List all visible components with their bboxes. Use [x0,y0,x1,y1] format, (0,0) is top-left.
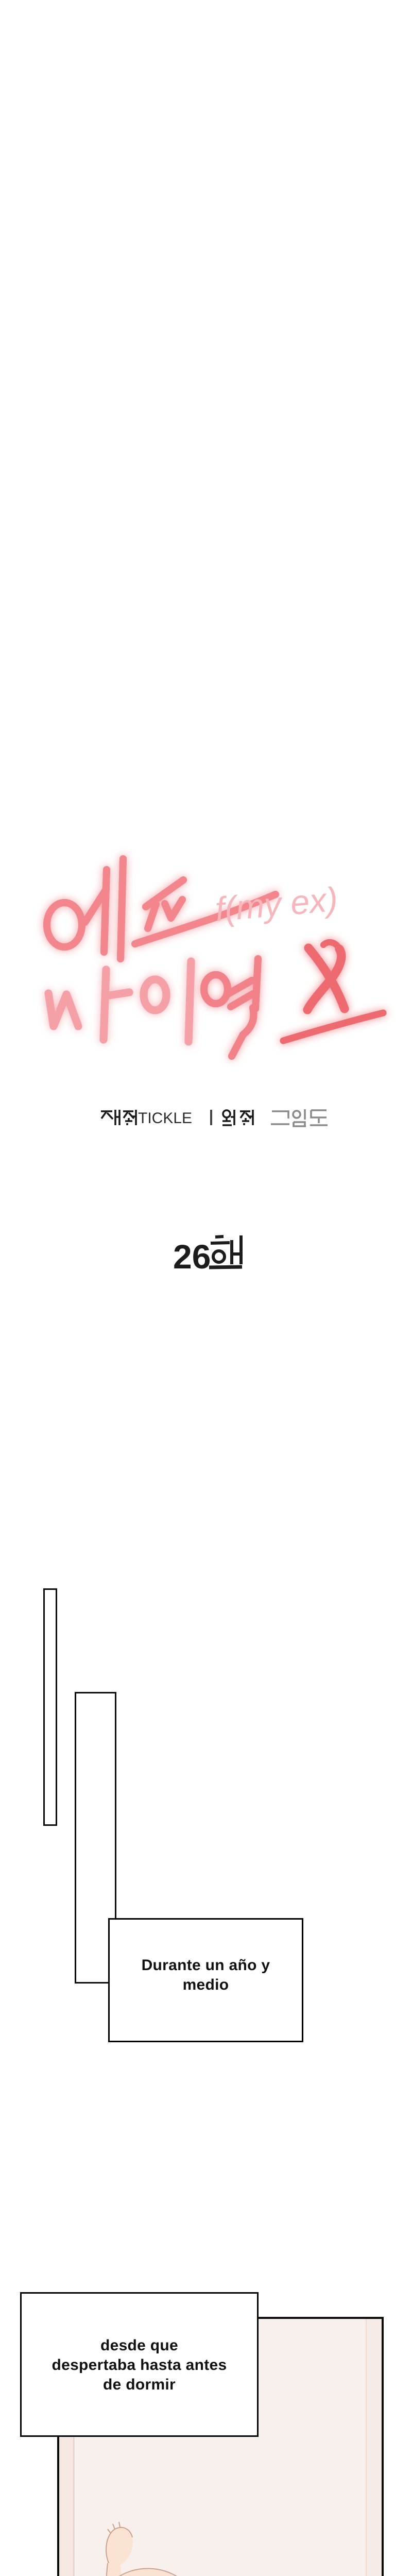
svg-text:26: 26 [173,1238,211,1273]
svg-text:f(my ex): f(my ex) [214,879,339,928]
svg-text:TICKLE: TICKLE [138,1110,192,1127]
